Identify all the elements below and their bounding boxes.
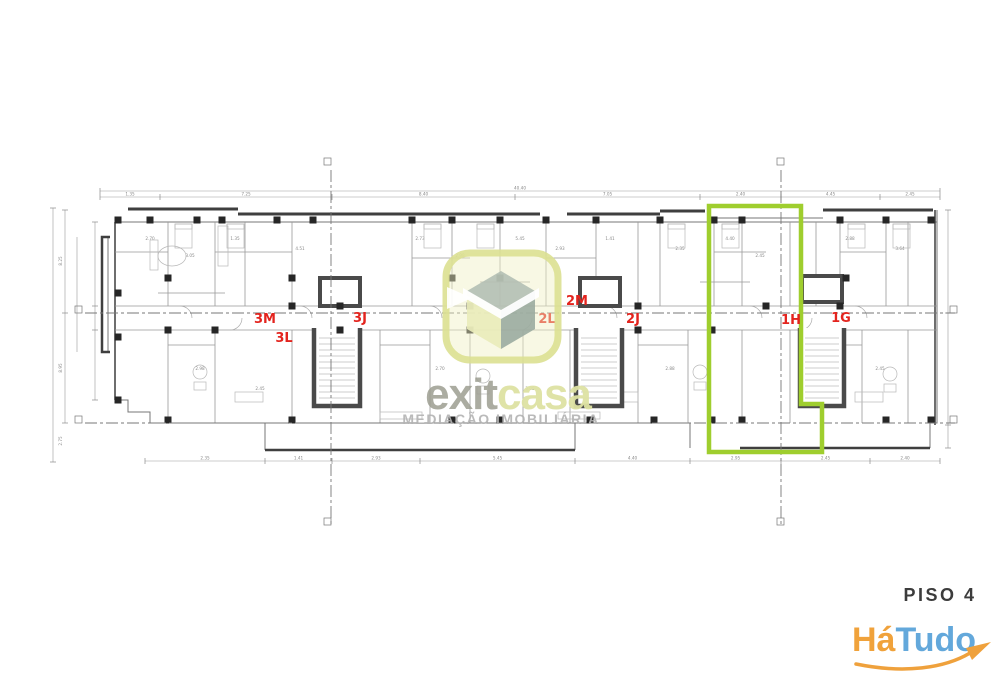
svg-text:2.75: 2.75 (58, 436, 63, 446)
svg-text:2.40: 2.40 (900, 455, 910, 460)
svg-text:7.25: 7.25 (241, 191, 251, 196)
unit-label-3J: 3J (353, 311, 367, 326)
svg-text:4.51: 4.51 (295, 246, 305, 251)
svg-text:8.40: 8.40 (419, 191, 429, 196)
svg-text:5.45: 5.45 (493, 455, 503, 460)
svg-text:2.88: 2.88 (665, 366, 675, 371)
svg-text:2.45: 2.45 (755, 253, 765, 258)
svg-text:2.35: 2.35 (200, 455, 210, 460)
unit-label-1G: 1G (831, 311, 851, 326)
svg-text:5.45: 5.45 (515, 236, 525, 241)
svg-text:2.45: 2.45 (905, 191, 915, 196)
svg-text:2.98: 2.98 (195, 366, 205, 371)
watermark-tagline: MEDIAÇÃO IMOBILIÁRIA (402, 410, 599, 427)
unit-label-2M: 2M (566, 294, 588, 309)
svg-text:3.05: 3.05 (185, 253, 195, 258)
svg-text:1.35: 1.35 (230, 236, 240, 241)
hatudo-logo-text: HáTudo (852, 621, 976, 659)
floorplan-image[interactable]: 1.357.258.407.052.404.452.4540.402.351.4… (0, 0, 1001, 681)
svg-text:7.05: 7.05 (603, 191, 613, 196)
unit-label-3L: 3L (275, 331, 292, 346)
svg-text:1.41: 1.41 (294, 455, 304, 460)
svg-text:4.40: 4.40 (628, 455, 638, 460)
svg-text:2.45: 2.45 (255, 386, 265, 391)
svg-text:2.45: 2.45 (875, 366, 885, 371)
svg-text:8.95: 8.95 (58, 363, 63, 373)
svg-text:1.35: 1.35 (125, 191, 135, 196)
svg-text:2.93: 2.93 (371, 455, 381, 460)
svg-text:8.25: 8.25 (58, 256, 63, 266)
svg-text:2.73: 2.73 (415, 236, 425, 241)
svg-text:2.40: 2.40 (736, 191, 746, 196)
svg-text:2.45: 2.45 (821, 455, 831, 460)
hatudo-logo-part1: Há (852, 621, 896, 659)
footer: PISO 4 HáTudo (852, 585, 991, 669)
svg-text:3.64: 3.64 (895, 246, 905, 251)
svg-text:2.95: 2.95 (731, 455, 741, 460)
svg-text:2.93: 2.93 (555, 246, 565, 251)
svg-text:2.35: 2.35 (675, 246, 685, 251)
svg-text:4.40: 4.40 (725, 236, 735, 241)
svg-text:1.41: 1.41 (605, 236, 615, 241)
unit-label-2J: 2J (626, 312, 640, 327)
svg-text:40.40: 40.40 (514, 185, 526, 190)
unit-label-1H: 1H (781, 313, 801, 328)
unit-label-3M: 3M (254, 312, 276, 327)
floor-label: PISO 4 (903, 585, 976, 605)
floorplan-svg: 1.357.258.407.052.404.452.4540.402.351.4… (0, 0, 1001, 681)
svg-text:4.45: 4.45 (826, 191, 836, 196)
hatudo-logo-part2: Tudo (895, 621, 976, 659)
svg-text:2.88: 2.88 (845, 236, 855, 241)
